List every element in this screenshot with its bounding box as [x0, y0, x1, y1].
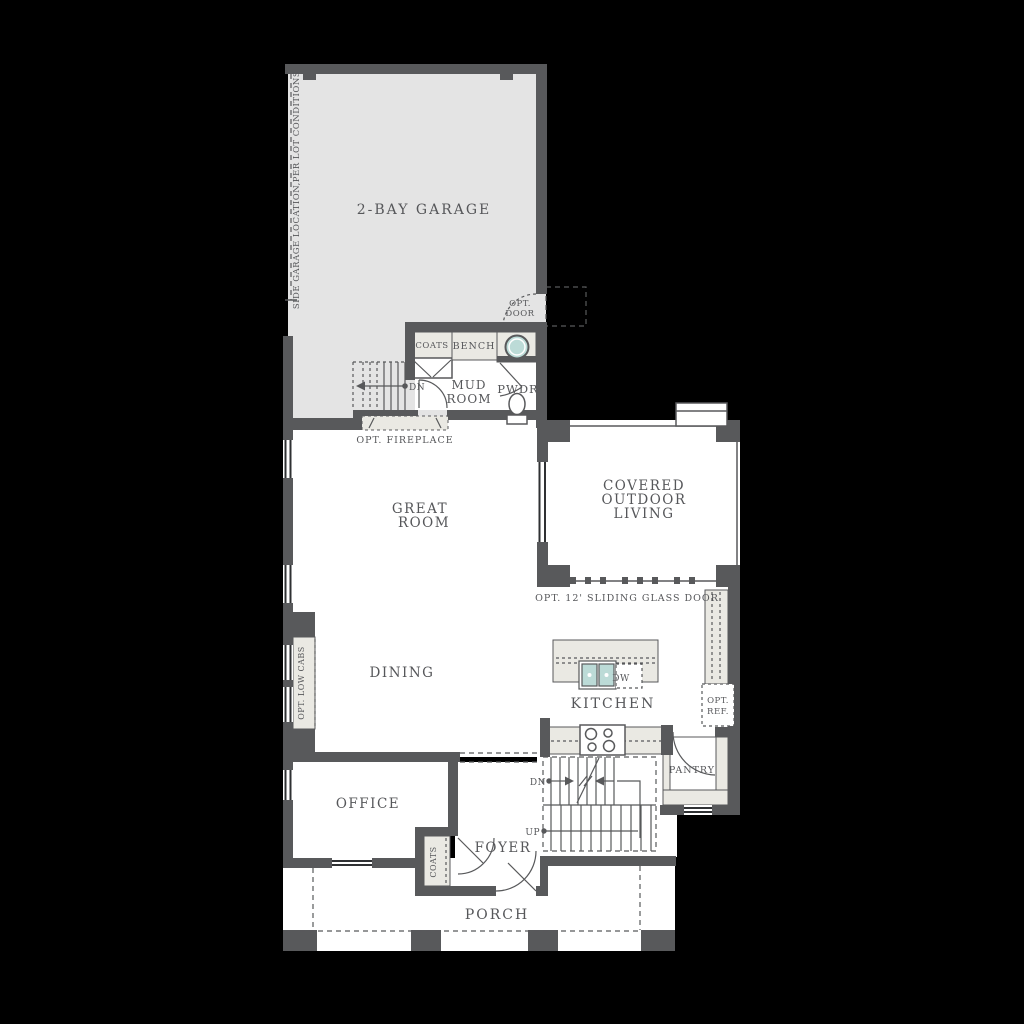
- sliding-glass-door-label: OPT. 12' SLIDING GLASS DOOR: [535, 593, 719, 604]
- mud-room-label-line2: ROOM: [447, 392, 492, 406]
- porch-label: PORCH: [465, 907, 529, 923]
- garage-label: 2-BAY GARAGE: [357, 202, 492, 218]
- window: [283, 565, 293, 603]
- wall-pier-upper: [293, 612, 315, 637]
- kitchen-side-counter: [705, 590, 728, 684]
- dining-label: DINING: [370, 665, 435, 681]
- foyer-coats-label: COATS: [429, 846, 438, 877]
- window: [537, 462, 548, 542]
- kitchen-label: KITCHEN: [571, 696, 656, 712]
- pantry-label: PANTRY: [669, 765, 715, 776]
- covered-outdoor-label-line3: LIVING: [614, 506, 675, 522]
- opt-ref-label-line2: REF.: [707, 707, 729, 717]
- patio-post-nw: [546, 420, 570, 442]
- foyer-front-wall-b: [536, 886, 548, 896]
- porch-post-3: [528, 930, 558, 951]
- great-room-floor: [293, 418, 537, 757]
- stairs-dn-label: DN: [530, 778, 546, 788]
- foyer-label: FOYER: [475, 840, 532, 856]
- mud-room-label-line1: MUD: [451, 378, 486, 392]
- office-foyer-wall: [448, 762, 458, 832]
- window: [684, 805, 712, 815]
- toilet-icon: [507, 394, 527, 425]
- porch-post-1: [283, 930, 317, 951]
- window: [283, 770, 293, 800]
- garage-stairs-dn-label: DN: [409, 383, 425, 393]
- porch-post-2: [411, 930, 441, 951]
- great-room-label-line2: ROOM: [398, 515, 450, 531]
- window: [283, 687, 293, 722]
- opt-door-label-line1: OPT.: [509, 299, 531, 309]
- porch-post-4: [641, 930, 675, 951]
- range-icon: [580, 725, 625, 755]
- powder-sink-icon: [506, 336, 529, 359]
- powder-label: PWDR: [497, 382, 538, 396]
- stair-front-wall: [540, 856, 676, 866]
- counter-wall-stub-left: [540, 718, 550, 757]
- stairs-up-label: UP: [525, 828, 540, 838]
- garage-corner-notch-left: [303, 74, 316, 80]
- mud-coats-closet: [413, 358, 452, 378]
- office-label: OFFICE: [336, 796, 400, 812]
- opt-low-cabs-label: OPT. LOW CABS: [297, 646, 306, 720]
- garage-corner-notch-right: [500, 74, 513, 80]
- bench-label: BENCH: [453, 341, 496, 352]
- mud-coats-label: COATS: [415, 341, 448, 351]
- patio-post-sw: [546, 565, 570, 587]
- opt-fireplace-label: OPT. FIREPLACE: [356, 435, 453, 446]
- dining-office-wall: [288, 752, 460, 762]
- floor-plan-page: 2-BAY GARAGE SIDE GARAGE LOCATION,PER LO…: [0, 0, 1024, 1024]
- opt-door-label-line2: DOOR: [505, 309, 534, 319]
- window: [283, 440, 293, 478]
- kitchen-sink-icon: [579, 661, 616, 689]
- mud-left-wall: [405, 322, 415, 380]
- garage-mud-wall: [405, 322, 547, 332]
- great-room-top-wall: [288, 418, 364, 430]
- window: [332, 858, 372, 868]
- foyer-floor: [455, 762, 540, 886]
- mud-bottom-wall-b: [447, 410, 547, 420]
- pantry-top-wall: [715, 727, 740, 737]
- garage-right-wall: [536, 64, 547, 294]
- foyer-front-wall-a: [415, 886, 496, 896]
- counter-wall-stub-right: [661, 725, 673, 755]
- patio-bbq-counter: [676, 403, 727, 426]
- pantry-door-opening: [673, 727, 715, 737]
- wall-pier-lower: [293, 729, 315, 753]
- window: [283, 645, 293, 680]
- garage-top-wall: [285, 64, 547, 74]
- pantry-shelf-bottom: [663, 790, 728, 805]
- patio-post-se: [716, 565, 740, 587]
- floor-plan-drawing: 2-BAY GARAGE SIDE GARAGE LOCATION,PER LO…: [0, 0, 1024, 1024]
- opt-ref-label-line1: OPT.: [707, 696, 729, 706]
- opt-door-stoop: [546, 287, 586, 326]
- side-garage-note: SIDE GARAGE LOCATION,PER LOT CONDITIONS: [292, 71, 302, 309]
- opt-fireplace-box: [362, 416, 448, 430]
- dishwasher-label: DW: [612, 674, 630, 684]
